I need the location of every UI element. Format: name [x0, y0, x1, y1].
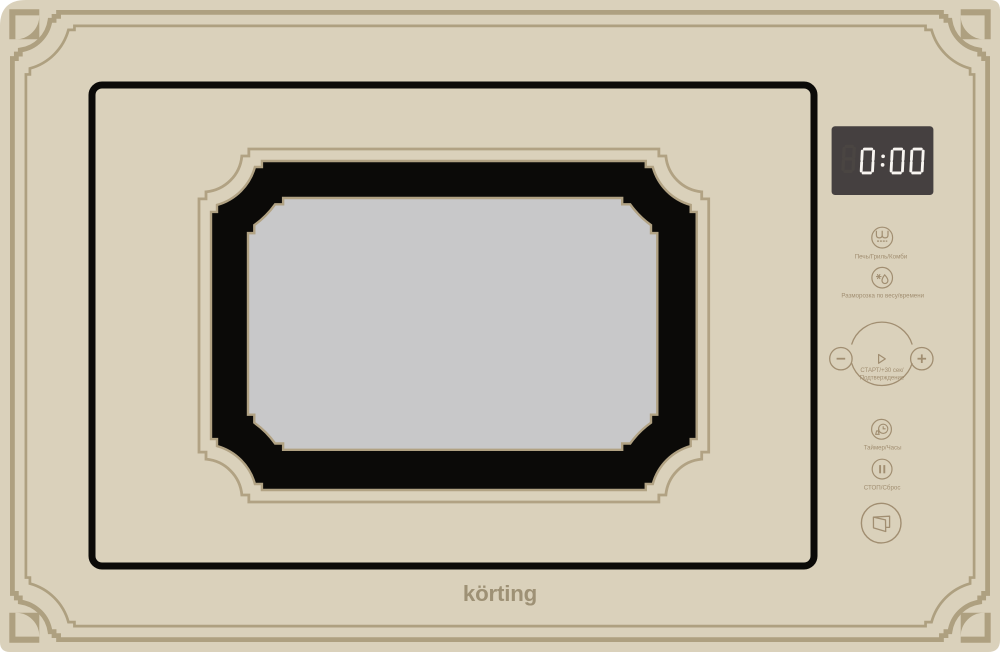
svg-text:СТОП/Сброс: СТОП/Сброс	[864, 485, 901, 492]
svg-text:Подтверждение: Подтверждение	[860, 375, 905, 381]
svg-text:СТАРТ/+30 сек/: СТАРТ/+30 сек/	[860, 368, 903, 374]
svg-text:Печь/Гриль/Комби: Печь/Гриль/Комби	[855, 254, 908, 261]
svg-text:Разморозка по весу/времени: Разморозка по весу/времени	[841, 292, 924, 299]
svg-text:körting: körting	[463, 581, 537, 606]
svg-text:Таймер/Часы: Таймер/Часы	[864, 444, 902, 451]
